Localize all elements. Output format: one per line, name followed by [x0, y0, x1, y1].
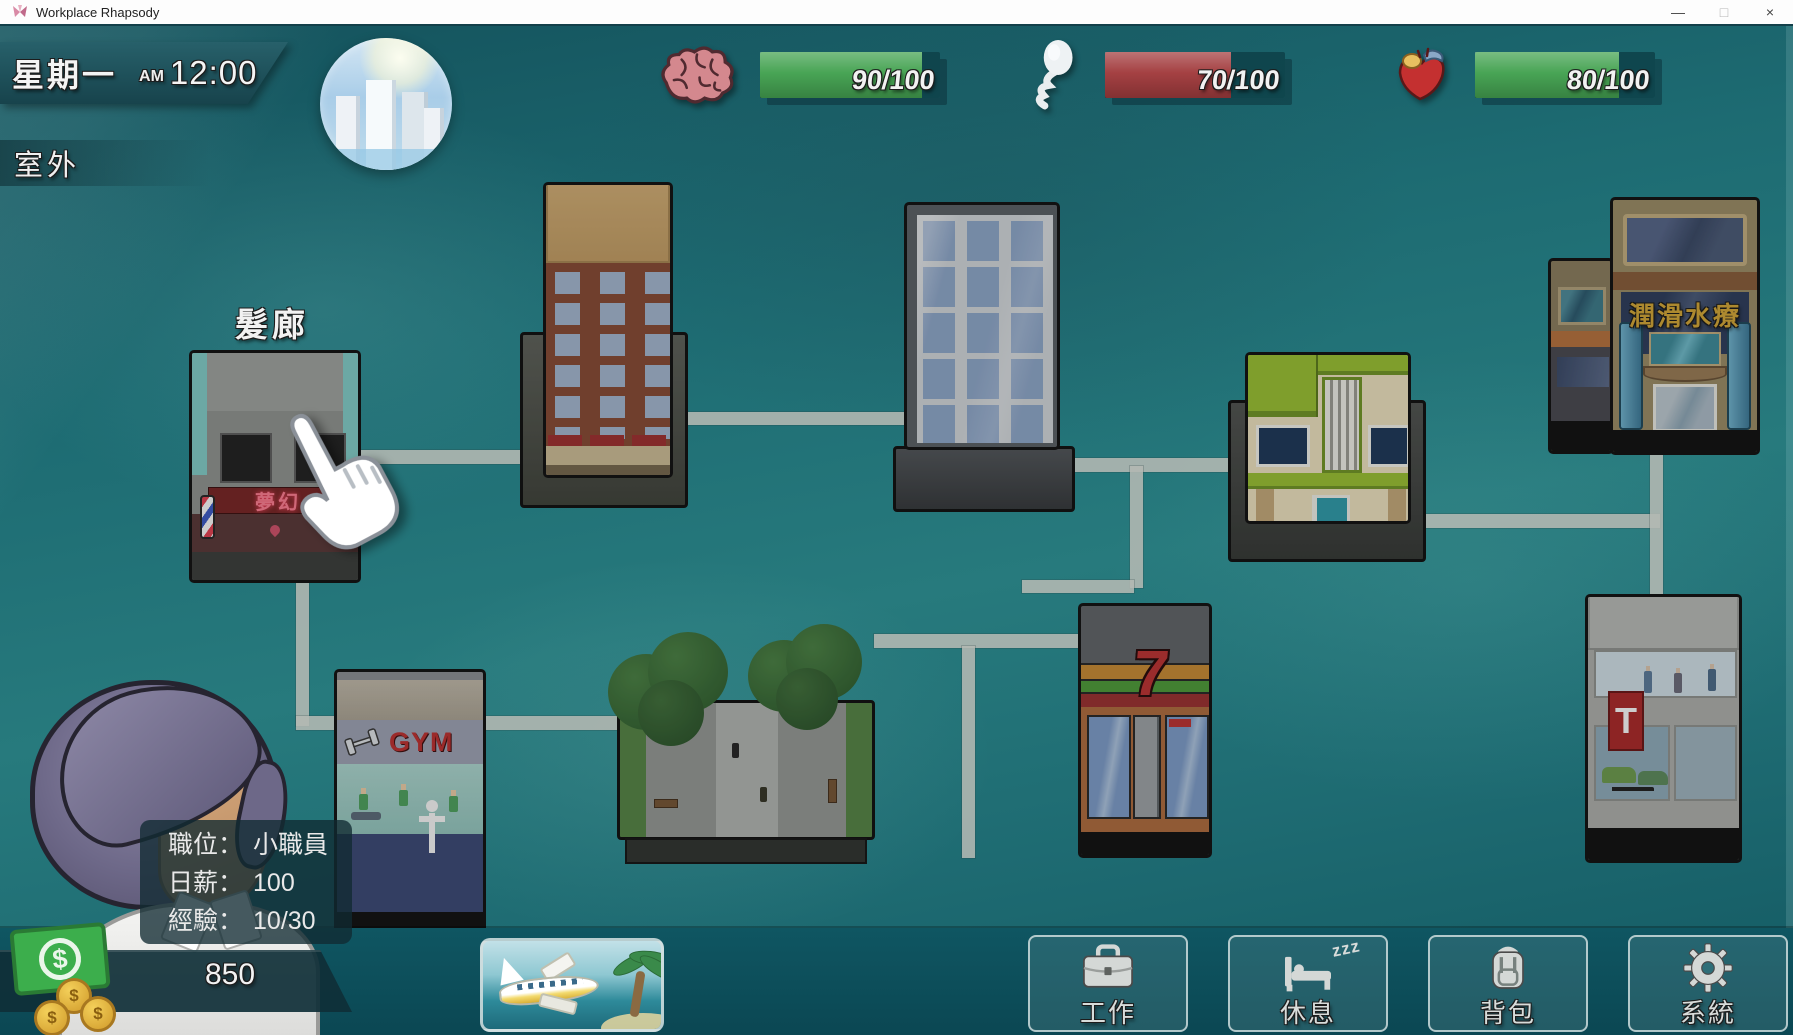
job-value: 小職員 [253, 826, 328, 864]
spa-brown-band [1613, 272, 1757, 290]
gym-sign-band: GYM [337, 720, 483, 764]
building-spa-main[interactable]: 潤滑水療 [1610, 197, 1760, 455]
system-button-label: 系統 [1680, 993, 1736, 1030]
road-path [1422, 514, 1660, 528]
sperm-icon [1024, 38, 1082, 112]
store-window [1165, 715, 1209, 819]
building-glass-office[interactable] [904, 202, 1060, 450]
job-row: 職位： 小職員 [168, 826, 352, 864]
spa-annex-lower-window [1557, 357, 1609, 387]
salary-value: 100 [253, 864, 295, 902]
close-button[interactable]: × [1747, 0, 1793, 24]
weather-globe[interactable] [320, 38, 452, 170]
job-label: 職位： [168, 826, 243, 864]
gym-window [337, 764, 483, 834]
dumbbell-icon [343, 727, 381, 757]
spa-annex-window [1558, 287, 1606, 325]
gym-beige-band [337, 680, 483, 720]
stat-bar-libido: 70/100 [1105, 52, 1285, 98]
building-green-house[interactable] [1245, 352, 1411, 524]
green-mid-band [1248, 473, 1408, 489]
bag-button-label: 背包 [1480, 993, 1536, 1030]
gym-treadmill [351, 812, 381, 820]
building-convenience-store[interactable]: 7 [1078, 603, 1212, 858]
bag-button[interactable]: 背包 [1428, 935, 1588, 1032]
brick-top-panel [546, 185, 670, 263]
skyline-water [320, 149, 452, 170]
road-path [686, 412, 908, 425]
brick-ground-floor [546, 446, 670, 478]
spa-annex-base [1551, 421, 1611, 451]
park-person [760, 787, 767, 802]
bed-icon [1275, 947, 1341, 993]
location-label: 室外 [14, 142, 80, 184]
brick-awnings [548, 435, 673, 446]
spa-column [1727, 322, 1751, 430]
green-pillar [1256, 489, 1274, 524]
game-viewport: 髮廊 夢幻 [0, 26, 1793, 1035]
gym-door-section [337, 834, 483, 912]
backpack-icon [1477, 943, 1539, 993]
store-window-sticker [1169, 719, 1191, 727]
minimize-button[interactable]: — [1655, 0, 1701, 24]
work-button[interactable]: 工作 [1028, 935, 1188, 1032]
gym-person [399, 790, 408, 806]
title-bar: Workplace Rhapsody — □ × [0, 0, 1793, 26]
road-path [1650, 452, 1663, 598]
store-seven-logo: 7 [1118, 636, 1184, 710]
park-bench [828, 779, 837, 803]
spa-base [1613, 430, 1757, 455]
spa-entry-window [1649, 332, 1721, 366]
dealer-banner-text: T [1615, 700, 1637, 742]
exp-row: 經驗： 10/30 [168, 902, 352, 940]
salary-row: 日薪： 100 [168, 864, 352, 902]
rest-button[interactable]: zzz 休息 [1228, 935, 1388, 1032]
park-tree [608, 632, 728, 752]
brick-window-grid [546, 263, 670, 439]
dealer-car [1638, 771, 1668, 785]
dealer-base [1588, 828, 1739, 863]
park-base [625, 838, 867, 864]
location-banner: 室外 [0, 140, 210, 186]
park-bench [654, 799, 678, 808]
stat-value: 80/100 [1566, 65, 1652, 96]
barber-pole [200, 495, 215, 539]
app-window: Workplace Rhapsody — □ × 髮廊 夢幻 [0, 0, 1793, 1035]
green-slat-window [1322, 377, 1362, 473]
window-title: Workplace Rhapsody [36, 5, 159, 20]
store-base [1081, 832, 1209, 858]
dealer-person [1644, 671, 1652, 693]
zzz-text: zzz [1330, 936, 1362, 961]
building-gym[interactable]: GYM [334, 669, 486, 938]
palm-tree-icon [629, 971, 645, 1018]
exp-label: 經驗： [168, 902, 243, 940]
park-tree [748, 622, 863, 737]
coin-icon: $ [34, 1000, 70, 1035]
brain-icon [656, 44, 738, 106]
store-window [1087, 715, 1131, 819]
work-button-label: 工作 [1080, 993, 1136, 1030]
green-roof-block [1248, 355, 1318, 417]
dealer-person [1708, 669, 1716, 691]
money-value: 850 [150, 958, 310, 992]
road-path [1022, 580, 1134, 593]
green-window [1368, 425, 1410, 467]
dealer-person [1674, 673, 1682, 693]
gym-door-figure [419, 800, 445, 870]
green-pillar [1388, 489, 1406, 524]
spa-annex-band [1551, 331, 1611, 347]
road-path [874, 634, 1080, 648]
gym-person [359, 794, 368, 810]
window-controls: — □ × [1655, 0, 1793, 24]
exp-value: 10/30 [253, 902, 316, 940]
job-info-panel: 職位： 小職員 日薪： 100 經驗： 10/30 [140, 820, 352, 944]
day-label: 星期一 [12, 50, 117, 96]
day-time-banner: 星期一 AM 12:00 [0, 42, 288, 104]
office-building-base [893, 446, 1075, 512]
dealer-side-window [1674, 725, 1737, 801]
travel-button[interactable] [480, 938, 664, 1032]
rest-button-label: 休息 [1280, 993, 1336, 1030]
spa-column [1619, 322, 1643, 430]
salon-map-label: 髮廊 [192, 298, 352, 346]
gym-person [449, 796, 458, 812]
green-door [1312, 495, 1350, 524]
office-glass-grid [917, 215, 1053, 443]
heart-icon [1388, 40, 1452, 106]
coin-icon: $ [80, 996, 116, 1032]
spa-awning [1643, 366, 1727, 382]
screen-edge-artifact [1786, 26, 1793, 1035]
salary-label: 日薪： [168, 864, 243, 902]
road-path [962, 646, 975, 858]
gym-sign-text: GYM [389, 727, 454, 758]
time-label: 12:00 [170, 54, 258, 92]
briefcase-icon [1075, 943, 1141, 993]
maximize-button[interactable]: □ [1701, 0, 1747, 24]
stat-bar-intellect: 90/100 [760, 52, 940, 98]
dealer-car [1602, 767, 1636, 783]
green-window [1256, 425, 1310, 467]
spa-door [1653, 384, 1717, 432]
salon-awning-strip [192, 353, 207, 475]
stat-value: 70/100 [1196, 65, 1282, 96]
dealer-banner: T [1608, 691, 1644, 751]
store-shopfront [1081, 707, 1209, 832]
gear-icon [1677, 943, 1739, 993]
store-door [1133, 715, 1161, 819]
building-spa-annex[interactable] [1548, 258, 1614, 454]
road-path [1130, 466, 1143, 588]
app-icon [12, 4, 28, 20]
system-button[interactable]: 系統 [1628, 935, 1788, 1032]
park-person [732, 743, 739, 758]
meridiem-label: AM [139, 68, 164, 86]
road-path [1058, 458, 1232, 472]
stat-value: 90/100 [851, 65, 937, 96]
building-car-dealer[interactable]: T [1585, 594, 1742, 863]
stat-bar-health: 80/100 [1475, 52, 1655, 98]
dealer-top-facade [1588, 597, 1739, 650]
spa-top-window [1623, 214, 1747, 266]
spa-sign-text: 潤滑水療 [1613, 296, 1757, 333]
building-brick-apartment[interactable] [543, 182, 673, 478]
